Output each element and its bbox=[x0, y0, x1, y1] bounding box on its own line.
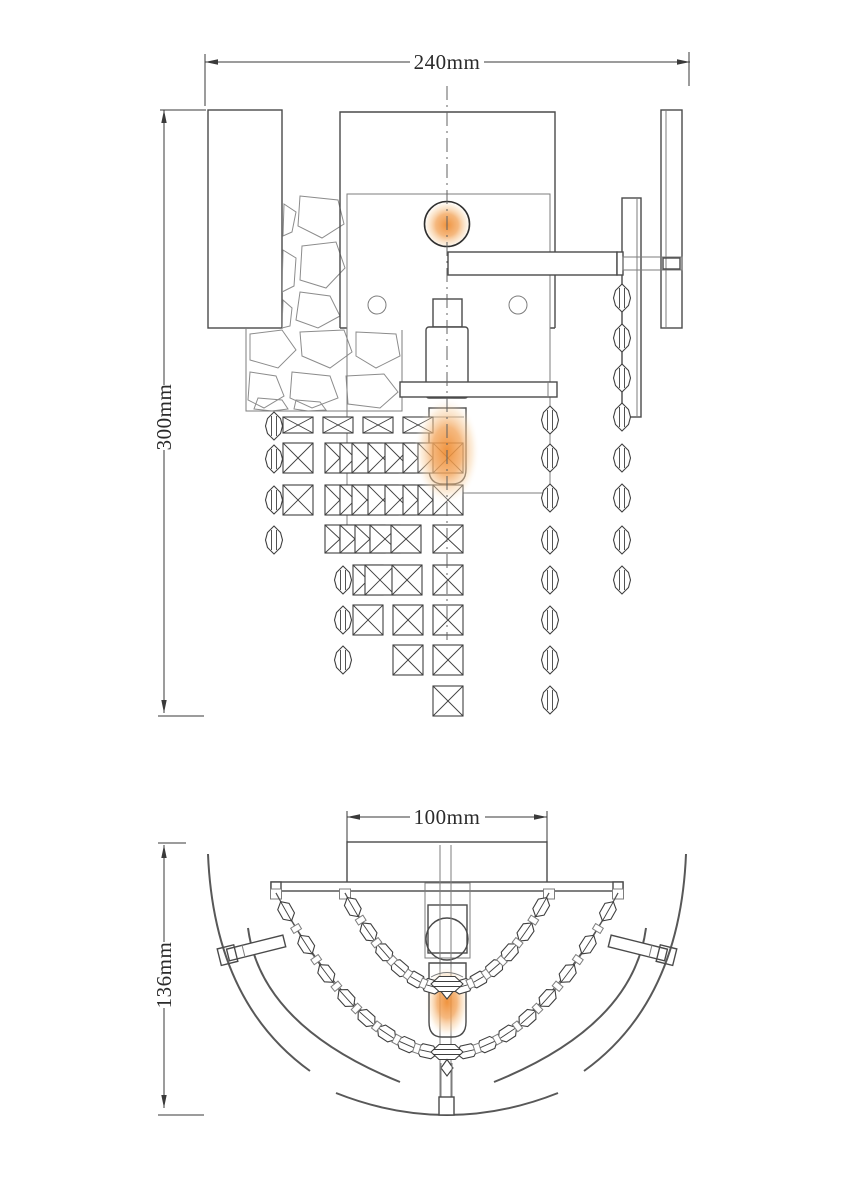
backbox-plan bbox=[347, 842, 547, 883]
crystal-square bbox=[323, 417, 353, 433]
chain-bead bbox=[576, 932, 599, 958]
crystal-bead bbox=[266, 526, 283, 554]
crystal-square bbox=[283, 485, 313, 515]
crystal-square bbox=[283, 443, 313, 473]
crystal-bead bbox=[614, 324, 631, 352]
crystal-bead bbox=[542, 606, 559, 634]
crystal-square bbox=[433, 605, 463, 635]
socket-circle-plan bbox=[426, 918, 468, 960]
holder-housing-plan bbox=[425, 883, 470, 958]
crystal-bead bbox=[614, 566, 631, 594]
crystal-square bbox=[433, 686, 463, 716]
screw-hole-left bbox=[368, 296, 386, 314]
crystal-bead bbox=[614, 284, 631, 312]
crystal-bead bbox=[266, 486, 283, 514]
dimension-width-100: 100mm bbox=[347, 805, 547, 842]
crystal-square bbox=[391, 525, 421, 553]
crystal-bead bbox=[614, 484, 631, 512]
crystal-bead bbox=[335, 646, 352, 674]
frame-bar bbox=[400, 382, 557, 397]
dim-depth-label: 136mm bbox=[152, 942, 176, 1009]
chain-bead bbox=[275, 899, 297, 925]
support-arm bbox=[448, 252, 617, 275]
dimension-height-300: 300mm bbox=[152, 110, 206, 716]
crystal-bead bbox=[542, 566, 559, 594]
crystal-square bbox=[433, 525, 463, 553]
drawing-canvas: 240mm 300mm bbox=[0, 0, 848, 1200]
crystal-square bbox=[363, 417, 393, 433]
crystal-square bbox=[353, 605, 383, 635]
crystal-bead bbox=[614, 403, 631, 431]
dimension-depth-136: 136mm bbox=[152, 843, 204, 1115]
crystal-square bbox=[393, 605, 423, 635]
chain-bead bbox=[295, 932, 318, 958]
crystal-square bbox=[283, 417, 313, 433]
dim-inner-width-label: 100mm bbox=[414, 805, 481, 829]
wall-bracket bbox=[448, 110, 682, 417]
crystal-square bbox=[433, 565, 463, 595]
crystal-bead bbox=[542, 646, 559, 674]
chain-link bbox=[291, 924, 302, 934]
crystal-bead bbox=[542, 526, 559, 554]
crystal-bead bbox=[266, 412, 283, 440]
chain-bead bbox=[597, 899, 619, 925]
crystal-square bbox=[433, 645, 463, 675]
chain-link bbox=[592, 924, 603, 934]
crystal-bead bbox=[614, 364, 631, 392]
bottom-stem-cap bbox=[439, 1097, 454, 1115]
socket-plan bbox=[428, 905, 467, 953]
dim-width-label: 240mm bbox=[414, 50, 481, 74]
crystal-bead bbox=[335, 566, 352, 594]
wall-plate bbox=[661, 110, 682, 328]
crystal-bead bbox=[335, 606, 352, 634]
crystal-bead bbox=[614, 444, 631, 472]
crystal-bead bbox=[542, 484, 559, 512]
crystal-bead bbox=[614, 526, 631, 554]
crystal-bead bbox=[542, 444, 559, 472]
crystal-bead bbox=[542, 406, 559, 434]
crystal-square bbox=[392, 565, 422, 595]
front-view bbox=[208, 86, 682, 716]
dim-height-label: 300mm bbox=[152, 384, 176, 451]
center-bead-lower bbox=[431, 1045, 463, 1077]
technical-drawing: 240mm 300mm bbox=[0, 0, 848, 1200]
screw-hole-right bbox=[509, 296, 527, 314]
crystal-square bbox=[393, 645, 423, 675]
crystal-square bbox=[365, 565, 395, 595]
arm-end-cap bbox=[617, 252, 623, 275]
left-panel bbox=[208, 110, 282, 328]
crystal-bead bbox=[542, 686, 559, 714]
bottom-view bbox=[208, 842, 686, 1115]
crystal-bead bbox=[266, 445, 283, 473]
